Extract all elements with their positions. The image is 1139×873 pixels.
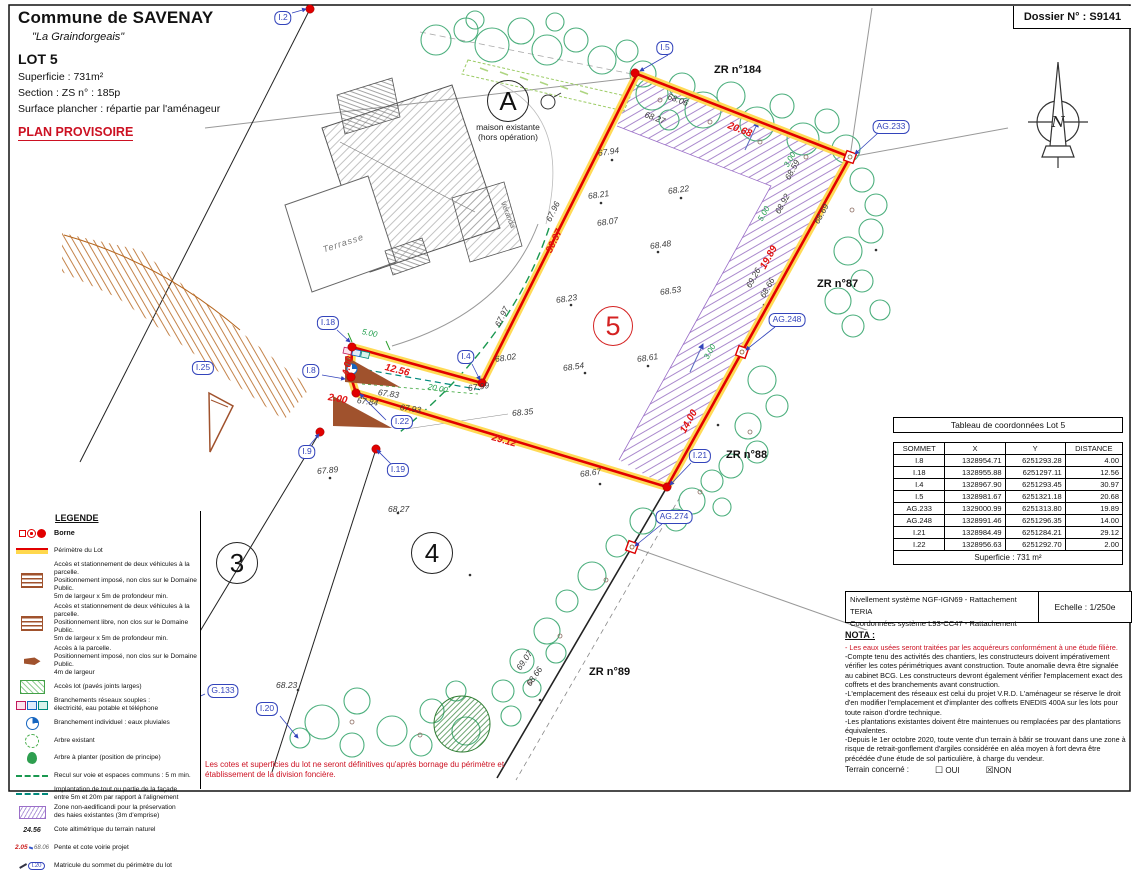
oui-label: OUI xyxy=(945,766,959,775)
table-title: Tableau de coordonnées Lot 5 xyxy=(893,417,1123,433)
legend-item: 24.56 Cote altimétrique du terrain natur… xyxy=(15,823,200,838)
legend-icon-text: 2.05 xyxy=(15,844,28,851)
coordinate-row: AG.248 1328991.46 6251296.35 14.00 xyxy=(894,515,1123,527)
legend-icon-shape xyxy=(16,548,48,554)
distance-cell: 20.68 xyxy=(1065,491,1122,503)
table-body: I.8 1328954.71 6251293.28 4.00 I.18 1328… xyxy=(894,455,1123,551)
legend-icon-shape xyxy=(26,717,39,730)
surface-plancher: Surface plancher : répartie par l'aménag… xyxy=(18,103,220,115)
y-cell: 6251284.21 xyxy=(1005,527,1065,539)
legend-item-icon xyxy=(15,716,49,731)
datum-scale-box: Nivellement système NGF-IGN69 - Rattache… xyxy=(845,591,1132,623)
sommet-cell: I.8 xyxy=(894,455,945,467)
x-cell: 1328991.46 xyxy=(945,515,1005,527)
maison-line1: maison existante xyxy=(476,122,540,132)
legend-icon-shape xyxy=(38,701,48,710)
cadastral-plan-sheet: { "header": { "title": "Commune de SAVEN… xyxy=(0,0,1139,796)
legend-icon-shape xyxy=(16,701,26,710)
legend-items: Borne Périmètre du Lot xyxy=(15,526,200,873)
y-cell: 6251292.70 xyxy=(1005,539,1065,551)
y-cell: 6251296.35 xyxy=(1005,515,1065,527)
legend-icon-shape xyxy=(25,734,39,748)
legend-item-icon: I.20 xyxy=(15,858,49,873)
legend-item-icon xyxy=(15,654,49,669)
oui-checkbox: ☐ xyxy=(935,765,943,775)
legend-item-label: Zone non-aedificandi pour la préservatio… xyxy=(54,804,176,820)
distance-cell: 19.89 xyxy=(1065,503,1122,515)
section: Section : ZS n° : 185p xyxy=(18,87,220,99)
coordinate-row: AG.233 1329000.99 6251313.80 19.89 xyxy=(894,503,1123,515)
paved-access xyxy=(462,60,630,111)
legend-item-icon xyxy=(15,698,49,713)
table-footer: Superficie : 731 m² xyxy=(893,551,1123,565)
lieu-dit: "La Graindorgeais" xyxy=(32,31,220,43)
stormwater-symbol xyxy=(347,364,357,374)
legend-item-label: Cote altimétrique du terrain naturel xyxy=(54,826,156,834)
y-cell: 6251293.28 xyxy=(1005,455,1065,467)
legend-icon-shape xyxy=(20,680,45,694)
existing-house-label: maison existante (hors opération) xyxy=(476,122,540,142)
coordinate-row: I.5 1328981.67 6251321.18 20.68 xyxy=(894,491,1123,503)
legend-icon-text: I.20 xyxy=(28,862,44,870)
x-cell: 1329000.99 xyxy=(945,503,1005,515)
legend-icon-shape xyxy=(27,752,37,764)
legend-item-label: Accès et stationnement de deux véhicules… xyxy=(54,603,200,643)
nota-paragraph: -Les plantations existantes doivent être… xyxy=(845,717,1128,735)
non-option: ☒NON xyxy=(986,765,1012,776)
legend-item: Zone non-aedificandi pour la préservatio… xyxy=(15,804,200,820)
distance-cell: 29.12 xyxy=(1065,527,1122,539)
nota-block: NOTA : - Les eaux usées seront traitées … xyxy=(845,630,1128,776)
nota-title: NOTA : xyxy=(845,630,1128,640)
legend-item: Arbre à planter (position de principe) xyxy=(15,751,200,766)
nota-paragraphs: - Les eaux usées seront traitées par les… xyxy=(845,643,1128,763)
nivellement-line: Nivellement système NGF-IGN69 - Rattache… xyxy=(850,594,1034,618)
legend-item: 2.05 68.06 Pente et cote voirie projet xyxy=(15,840,200,855)
legend-item-label: Recul sur voie et espaces communs : 5 m … xyxy=(54,772,191,780)
distance-cell: 4.00 xyxy=(1065,455,1122,467)
distance-cell: 12.56 xyxy=(1065,467,1122,479)
commune-title: Commune de SAVENAY xyxy=(18,8,220,28)
distance-cell: 14.00 xyxy=(1065,515,1122,527)
x-cell: 1328967.90 xyxy=(945,479,1005,491)
legend-item-icon xyxy=(15,526,49,541)
legend-item-label: Branchement individuel : eaux pluviales xyxy=(54,719,170,727)
legend-item: Accès à la parcelle. Positionnement impo… xyxy=(15,645,200,677)
legend-item-icon xyxy=(15,680,49,695)
legend-item-label: Branchements réseaux souples : électrici… xyxy=(54,697,158,713)
legend-item: Implantation de tout ou partie de la faç… xyxy=(15,786,200,802)
y-cell: 6251321.18 xyxy=(1005,491,1065,503)
legend-icon-shape xyxy=(16,775,48,777)
legend-item-icon xyxy=(15,805,49,820)
legend-icon-shape xyxy=(19,530,26,537)
non-label: NON xyxy=(994,766,1012,775)
legend-item-label: Accès lot (pavés joints larges) xyxy=(54,683,142,691)
legend-item-label: Borne xyxy=(54,529,75,538)
hatched-tree xyxy=(434,696,490,752)
maison-line2: (hors opération) xyxy=(476,132,540,142)
legend-icon-shape xyxy=(16,793,48,795)
dossier-box: Dossier N° : S9141 xyxy=(1013,6,1131,29)
table-header-cell: Y xyxy=(1005,443,1065,455)
legend-icon-shape xyxy=(20,863,28,868)
legend-item: I.20 Matricule du sommet du périmètre du… xyxy=(15,858,200,873)
coordinate-row: I.21 1328984.49 6251284.21 29.12 xyxy=(894,527,1123,539)
legend-item-icon: 2.05 68.06 xyxy=(15,840,49,855)
sommet-cell: I.21 xyxy=(894,527,945,539)
nota-paragraph: -Depuis le 1er octobre 2020, toute vente… xyxy=(845,735,1128,763)
legend-item: Accès et stationnement de deux véhicules… xyxy=(15,603,200,643)
legend-icon-shape xyxy=(27,529,36,538)
legend-item-label: Accès et stationnement de deux véhicules… xyxy=(54,561,200,601)
legend-item-label: Arbre à planter (position de principe) xyxy=(54,754,161,762)
dossier-number: Dossier N° : S9141 xyxy=(1024,11,1121,23)
well-symbol xyxy=(541,93,561,109)
sommet-cell: AG.233 xyxy=(894,503,945,515)
legend-icon-text: 24.56 xyxy=(23,827,41,834)
superficie: Superficie : 731m² xyxy=(18,71,220,83)
nota-paragraph: -Compte tenu des activités des chantiers… xyxy=(845,652,1128,689)
embankment-hatch xyxy=(62,233,310,420)
terrain-row: Terrain concerné : ☐ OUI ☒NON xyxy=(845,765,1128,776)
sommet-cell: I.18 xyxy=(894,467,945,479)
coordinate-row: I.22 1328956.63 6251292.70 2.00 xyxy=(894,539,1123,551)
x-cell: 1328956.63 xyxy=(945,539,1005,551)
lot-number-title: LOT 5 xyxy=(18,51,220,67)
legend-icon-shape xyxy=(28,846,33,849)
legend-item: Recul sur voie et espaces communs : 5 m … xyxy=(15,768,200,783)
legend-item-label: Périmètre du Lot xyxy=(54,547,103,555)
legend-item: Accès et stationnement de deux véhicules… xyxy=(15,561,200,601)
table-header-cell: SOMMET xyxy=(894,443,945,455)
x-cell: 1328981.67 xyxy=(945,491,1005,503)
coordinate-row: I.18 1328955.88 6251297.11 12.56 xyxy=(894,467,1123,479)
legend-item-icon xyxy=(15,768,49,783)
coordinate-row: I.4 1328967.90 6251293.45 30.97 xyxy=(894,479,1123,491)
table-header-cell: X xyxy=(945,443,1005,455)
legend-item: Arbre existant xyxy=(15,733,200,748)
coordinates-table: Tableau de coordonnées Lot 5 SOMMETXYDIS… xyxy=(893,417,1123,565)
legend-item: Accès lot (pavés joints larges) xyxy=(15,680,200,695)
legend-title: LEGENDE xyxy=(55,513,200,523)
y-cell: 6251293.45 xyxy=(1005,479,1065,491)
terrain-label: Terrain concerné : xyxy=(845,765,909,776)
legend-icon-shape xyxy=(27,701,37,710)
legend-item-icon xyxy=(15,786,49,801)
oui-option: ☐ OUI xyxy=(935,765,960,776)
legend-item-label: Arbre existant xyxy=(54,737,95,745)
title-block: Commune de SAVENAY "La Graindorgeais" LO… xyxy=(18,8,220,141)
y-cell: 6251297.11 xyxy=(1005,467,1065,479)
sommet-cell: I.4 xyxy=(894,479,945,491)
legend-icon-text2: 68.06 xyxy=(34,845,49,851)
legend: LEGENDE Borne xyxy=(11,511,201,789)
legend-item-label: Pente et cote voirie projet xyxy=(54,844,129,852)
datum-info: Nivellement système NGF-IGN69 - Rattache… xyxy=(846,592,1038,622)
legend-item-icon: 24.56 xyxy=(15,823,49,838)
legend-item-icon xyxy=(15,544,49,559)
legend-item: Branchement individuel : eaux pluviales xyxy=(15,716,200,731)
x-cell: 1328955.88 xyxy=(945,467,1005,479)
legend-icon-shape xyxy=(37,529,46,538)
scale-value: Echelle : 1/250e xyxy=(1038,592,1131,622)
plan-provisoire-stamp: PLAN PROVISOIRE xyxy=(18,125,133,141)
existing-house xyxy=(285,78,553,346)
non-aedificandi-zone xyxy=(617,74,850,487)
bornage-disclaimer: Les cotes et superficies du lot ne seron… xyxy=(205,760,550,781)
legend-icon-shape xyxy=(21,573,43,588)
distance-cell: 30.97 xyxy=(1065,479,1122,491)
legend-item-icon xyxy=(15,733,49,748)
sommet-cell: I.5 xyxy=(894,491,945,503)
legend-item-label: Accès à la parcelle. Positionnement impo… xyxy=(54,645,200,677)
legend-item: Borne xyxy=(15,526,200,541)
table-header-row: SOMMETXYDISTANCE xyxy=(894,443,1123,455)
legend-item-icon xyxy=(15,616,49,631)
distance-cell: 2.00 xyxy=(1065,539,1122,551)
nota-paragraph: -L'emplacement des réseaux est celui du … xyxy=(845,689,1128,717)
legend-item-label: Implantation de tout ou partie de la faç… xyxy=(54,786,178,802)
sommet-cell: I.22 xyxy=(894,539,945,551)
coordinate-row: I.8 1328954.71 6251293.28 4.00 xyxy=(894,455,1123,467)
x-cell: 1328954.71 xyxy=(945,455,1005,467)
legend-item-label: Matricule du sommet du périmètre du lot xyxy=(54,862,172,870)
legend-icon-shape xyxy=(21,616,43,631)
y-cell: 6251313.80 xyxy=(1005,503,1065,515)
nota-paragraph: - Les eaux usées seront traitées par les… xyxy=(845,643,1128,652)
sommet-cell: AG.248 xyxy=(894,515,945,527)
north-letter: N xyxy=(1050,113,1066,131)
non-checkbox: ☒ xyxy=(986,765,994,775)
legend-item-icon xyxy=(15,751,49,766)
legend-icon-shape xyxy=(24,657,41,666)
legend-item-icon xyxy=(15,573,49,588)
legend-item: Périmètre du Lot xyxy=(15,544,200,559)
x-cell: 1328984.49 xyxy=(945,527,1005,539)
legend-icon-shape xyxy=(19,806,46,819)
table-header-cell: DISTANCE xyxy=(1065,443,1122,455)
legend-item: Branchements réseaux souples : électrici… xyxy=(15,697,200,713)
